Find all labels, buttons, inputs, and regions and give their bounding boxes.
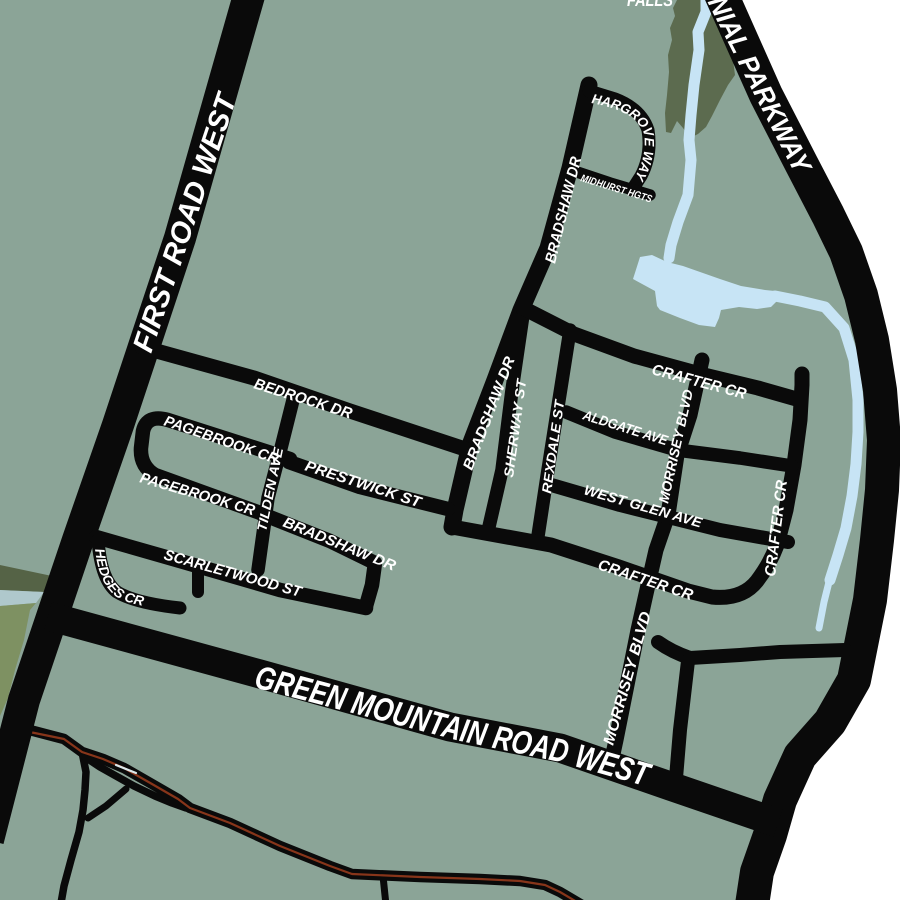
svg-text:FALLS: FALLS bbox=[627, 0, 673, 10]
